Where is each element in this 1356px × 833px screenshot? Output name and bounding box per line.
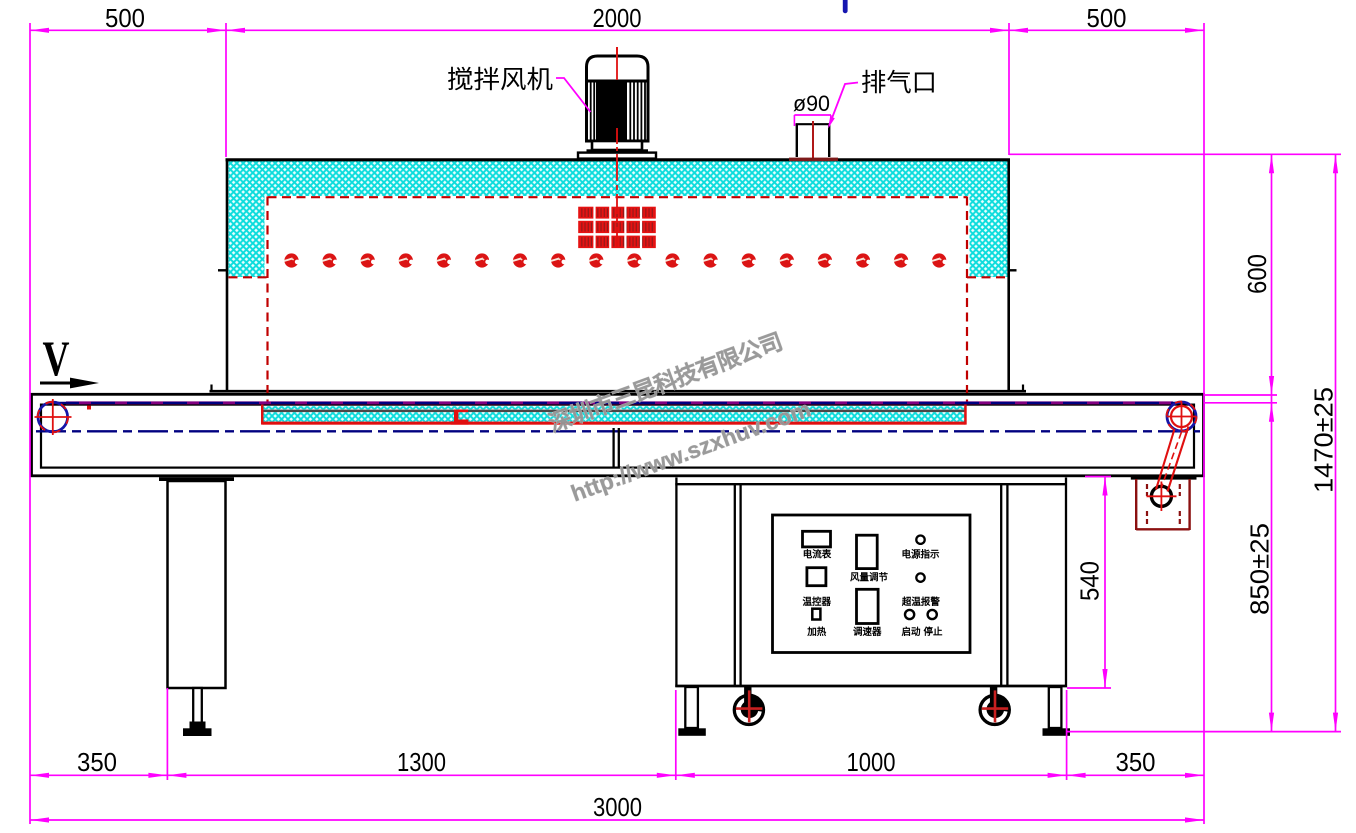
svg-text:风量调节: 风量调节 — [850, 571, 889, 583]
svg-text:1300: 1300 — [397, 747, 446, 777]
svg-text:350: 350 — [1116, 747, 1156, 777]
svg-text:2000: 2000 — [593, 3, 642, 33]
svg-text:500: 500 — [1087, 3, 1127, 33]
svg-text:540: 540 — [1075, 561, 1105, 601]
svg-text:调速器: 调速器 — [853, 626, 882, 638]
svg-text:排气口: 排气口 — [861, 69, 937, 97]
svg-text:ø90: ø90 — [793, 91, 830, 116]
svg-text:超温报警: 超温报警 — [901, 596, 941, 608]
svg-text:温控器: 温控器 — [803, 596, 832, 608]
svg-text:3000: 3000 — [593, 792, 642, 822]
svg-text:1000: 1000 — [847, 747, 896, 777]
svg-text:1470±25: 1470±25 — [1309, 387, 1339, 493]
svg-text:搅拌风机: 搅拌风机 — [447, 66, 553, 94]
svg-text:电源指示: 电源指示 — [901, 549, 940, 561]
svg-text:启动: 启动 — [901, 626, 921, 638]
svg-text:350: 350 — [77, 747, 117, 777]
svg-text:停止: 停止 — [923, 626, 943, 638]
svg-text:电流表: 电流表 — [803, 549, 832, 561]
svg-text:加热: 加热 — [806, 626, 827, 638]
svg-text:500: 500 — [105, 3, 145, 33]
svg-text:V: V — [43, 330, 70, 386]
svg-text:600: 600 — [1242, 254, 1272, 294]
svg-text:850±25: 850±25 — [1245, 523, 1275, 615]
